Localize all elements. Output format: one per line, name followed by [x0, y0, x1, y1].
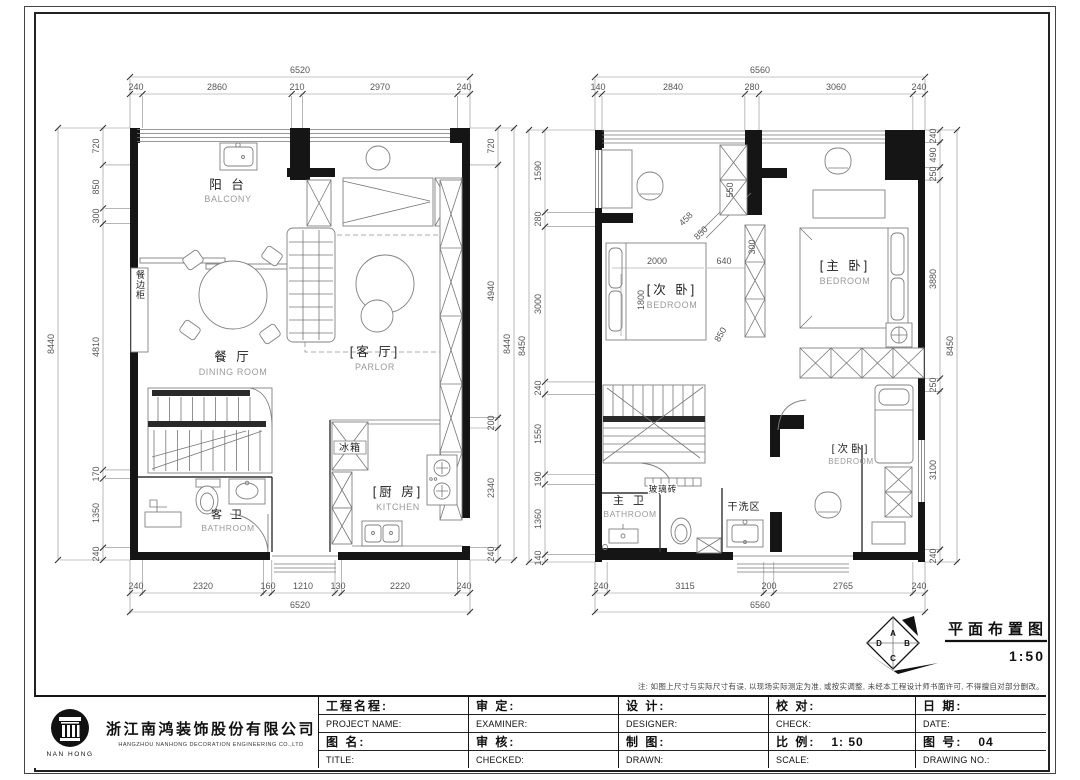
desk	[602, 150, 632, 208]
dim-label: 240	[593, 581, 608, 591]
dim-label: 240	[911, 581, 926, 591]
field-check: 校 对:	[769, 697, 915, 715]
dim-label: 1590	[533, 161, 543, 181]
dim-label: 6520	[290, 65, 310, 75]
field-date-en: DATE:	[916, 715, 1046, 733]
dim-label: 240	[456, 581, 471, 591]
field-drawn-en: DRAWN:	[619, 751, 768, 768]
marker-letter-b: B	[904, 639, 910, 648]
washbasin	[145, 512, 181, 527]
dim-label: 6560	[750, 65, 770, 75]
room-label-master: [主 卧]	[820, 259, 870, 273]
field-scale: 比 例:1: 50	[769, 733, 915, 751]
dim-label: 3880	[928, 269, 938, 289]
dim-label: 240	[928, 548, 938, 563]
field-check-en: CHECK:	[769, 715, 915, 733]
field-designer-en: DESIGNER:	[619, 715, 768, 733]
dim-label: 3100	[928, 460, 938, 480]
guest-bathroom: 客 卫 BATHROOM	[145, 479, 268, 552]
chair	[179, 319, 202, 341]
dim-label: 3000	[533, 294, 543, 314]
dim-label: 210	[289, 82, 304, 92]
title-block-col-designer: 设 计: DESIGNER: 制 图: DRAWN:	[618, 697, 768, 768]
company-name-en: HANGZHOU NANHONG DECORATION ENGINEERING …	[106, 742, 316, 748]
drawing-title: 平面布置图	[948, 620, 1048, 638]
toilet	[671, 518, 691, 544]
field-drawing-no: 图 号:04	[916, 733, 1046, 751]
field-label: 图 名:	[326, 733, 365, 750]
bedroom-3: [次卧] BEDROOM	[815, 385, 913, 544]
room-label-balcony-en: BALCONY	[204, 194, 251, 204]
dim-label: 240	[928, 128, 938, 143]
room-label-balcony: 阳 台	[209, 177, 246, 192]
room-label-parlor: [客 厅]	[350, 344, 400, 359]
stairs	[148, 388, 272, 473]
dim-label: 240	[533, 380, 543, 395]
company-name: 浙江南鸿装饰股份有限公司	[106, 718, 316, 739]
fridge-label: 冰箱	[339, 441, 361, 454]
dim-label: 850	[91, 179, 101, 194]
floor-plan-canvas: 6520 240 2860 210 2970 240 8440 720 850 …	[0, 0, 1080, 695]
field-label: TITLE:	[326, 755, 354, 765]
field-label: 日 期:	[923, 697, 962, 714]
stairs-upper	[603, 385, 705, 491]
dim-label: 250	[928, 377, 938, 392]
field-label: DRAWN:	[626, 755, 663, 765]
title-block-col-project: 工程名程: PROJECT NAME: 图 名: TITLE:	[318, 697, 468, 768]
sofa	[287, 228, 335, 342]
plan-left: 6520 240 2860 210 2970 240 8440 720 850 …	[46, 65, 517, 615]
dim-label: 160	[260, 581, 275, 591]
drawing-sheet: 6520 240 2860 210 2970 240 8440 720 850 …	[0, 0, 1080, 780]
dim-label: 640	[716, 256, 731, 266]
dim-label: 2840	[663, 82, 683, 92]
dim-label: 240	[128, 82, 143, 92]
dim-label: 2765	[833, 581, 853, 591]
dim-label: 240	[911, 82, 926, 92]
room-label-kitchen: [厨 房]	[373, 484, 423, 499]
dim-label: 6560	[750, 600, 770, 610]
title-block-col-check: 校 对: CHECK: 比 例:1: 50 SCALE:	[768, 697, 915, 768]
field-label: DATE:	[923, 719, 950, 729]
marker-letter-c: C	[890, 654, 896, 663]
drawing-scale: 1:50	[1009, 648, 1045, 664]
dim-label: 2970	[370, 82, 390, 92]
room-label-bath2: 主 卫	[613, 494, 647, 507]
field-label: 审 核:	[476, 733, 515, 750]
dim-label: 250	[928, 166, 938, 181]
room-label-bath: 客 卫	[211, 507, 245, 521]
drawing-title-group: A B C D 平面布置图 1:50	[866, 616, 1048, 674]
dim-label: 850	[692, 224, 710, 242]
dim-label: 130	[330, 581, 345, 591]
dim-label: 3115	[675, 581, 694, 591]
field-drawing-no-en: DRAWING NO.:	[916, 751, 1046, 768]
company-logo: NAN HONG	[44, 708, 96, 758]
field-label: 制 图:	[626, 733, 665, 750]
company-cell: NAN HONG 浙江南鸿装饰股份有限公司 HANGZHOU NANHONG D…	[34, 697, 318, 768]
room-label-bath-en: BATHROOM	[201, 523, 254, 533]
room-label-bedroom3: [次卧]	[832, 442, 871, 455]
room-label-bedroom2: [次 卧]	[647, 283, 697, 297]
dim-label: 190	[533, 471, 543, 486]
dim-label: 8440	[502, 334, 512, 354]
title-block-col-examiner: 审 定: EXAMINER: 审 核: CHECKED:	[468, 697, 618, 768]
dim-label: 280	[533, 211, 543, 226]
dim-label: 490	[928, 147, 938, 162]
dim-label: 2000	[647, 256, 667, 266]
field-checked-en: CHECKED:	[469, 751, 618, 768]
room-label-master-en: BEDROOM	[820, 276, 871, 286]
field-label: 审 定:	[476, 697, 515, 714]
field-drawing-name-en: TITLE:	[319, 751, 468, 768]
dim-label: 300	[747, 239, 757, 254]
field-project-name-en: PROJECT NAME:	[319, 715, 468, 733]
room-label-bath2-en: BATHROOM	[603, 509, 656, 519]
field-label: PROJECT NAME:	[326, 719, 401, 729]
room-label-kitchen-en: KITCHEN	[376, 502, 420, 512]
dim-label: 6520	[290, 600, 310, 610]
dim-label: 240	[128, 581, 143, 591]
sideboard-label: 餐边柜	[135, 269, 145, 300]
dim-label: 8450	[517, 336, 527, 356]
dim-label: 2860	[207, 82, 227, 92]
field-label: EXAMINER:	[476, 719, 527, 729]
room-label-bedroom2-en: BEDROOM	[647, 300, 698, 310]
field-scale-en: SCALE:	[769, 751, 915, 768]
master-bathroom: 玻璃砖 主 卫 BATHROOM	[603, 478, 722, 553]
basin	[609, 529, 638, 543]
dim-label: 8440	[46, 334, 56, 354]
dresser	[813, 190, 885, 218]
field-drawing-name: 图 名:	[319, 733, 468, 751]
title-block-col-date: 日 期: DATE: 图 号:04 DRAWING NO.:	[915, 697, 1046, 768]
chair	[259, 323, 282, 345]
chair	[825, 148, 851, 174]
logo-text: NAN HONG	[46, 751, 93, 758]
room-label-bedroom3-en: BEDROOM	[828, 457, 874, 466]
field-checked: 审 核:	[469, 733, 618, 751]
field-date: 日 期:	[916, 697, 1046, 715]
field-examiner: 审 定:	[469, 697, 618, 715]
ceiling-lamp	[366, 146, 390, 170]
dim-label: 2340	[486, 478, 496, 498]
marker-letter-a: A	[890, 629, 896, 638]
laundry-label: 干洗区	[728, 501, 761, 513]
master-bedroom: [主 卧] BEDROOM	[800, 148, 924, 378]
dim-label: 240	[456, 82, 471, 92]
field-label: 设 计:	[626, 697, 665, 714]
field-label: 校 对:	[776, 697, 815, 714]
dim-label: 1800	[636, 290, 646, 310]
title-block: NAN HONG 浙江南鸿装饰股份有限公司 HANGZHOU NANHONG D…	[34, 695, 1046, 768]
field-label: DRAWING NO.:	[923, 755, 990, 765]
room-label-parlor-en: PARLOR	[355, 362, 395, 372]
field-drawn: 制 图:	[619, 733, 768, 751]
dim-label: 280	[744, 82, 759, 92]
dim-label: 140	[533, 550, 543, 565]
chair	[182, 249, 205, 271]
dim-label: 240	[91, 546, 101, 561]
dim-label: 4810	[91, 337, 101, 357]
dim-label: 140	[590, 82, 605, 92]
dim-label: 300	[91, 208, 101, 223]
dim-label: 170	[91, 466, 101, 481]
dim-label: 240	[486, 546, 496, 561]
glass-brick-label: 玻璃砖	[649, 484, 678, 494]
field-label: 工程名程:	[326, 697, 388, 714]
dim-label: 458	[677, 210, 695, 228]
field-label: 图 号:	[923, 733, 962, 750]
field-project-name: 工程名程:	[319, 697, 468, 715]
dim-label: 3060	[826, 82, 846, 92]
dim-label: 720	[486, 138, 496, 153]
chair	[815, 492, 841, 518]
field-label: CHECKED:	[476, 755, 524, 765]
bench	[872, 522, 905, 544]
dim-label: 1210	[293, 581, 313, 591]
dim-label: 4940	[486, 281, 496, 301]
field-label: DESIGNER:	[626, 719, 677, 729]
dim-label: 1360	[533, 509, 543, 529]
dim-label: 200	[761, 581, 776, 591]
field-label: SCALE:	[776, 755, 809, 765]
room-label-dining-en: DINING ROOM	[199, 367, 268, 377]
chair	[637, 172, 663, 200]
dim-label: 2220	[390, 581, 410, 591]
scale-value: 1: 50	[831, 735, 863, 749]
field-label: 比 例:	[776, 733, 815, 750]
dim-label: 200	[486, 415, 496, 430]
dim-label: 8450	[945, 336, 955, 356]
field-designer: 设 计:	[619, 697, 768, 715]
dim-label: 720	[91, 138, 101, 153]
dim-label: 1550	[533, 424, 543, 444]
plan-right: 6560 140 2840 280 3060 240 1590 280 3000…	[517, 65, 960, 615]
dim-label: 850	[712, 325, 728, 343]
dining-table	[199, 261, 267, 329]
marker-letter-d: D	[876, 639, 882, 648]
drawing-no-value: 04	[978, 735, 993, 749]
dim-label: 1350	[91, 503, 101, 523]
dim-label: 2320	[193, 581, 213, 591]
parlor-wardrobe	[307, 146, 462, 226]
revision-note: 注: 如图上尺寸与实际尺寸有误, 以现场实际测定为准, 或按实调整, 未经本工程…	[524, 681, 1044, 692]
field-label: CHECK:	[776, 719, 811, 729]
rug-circle	[361, 300, 393, 332]
dim-label: 550	[725, 182, 735, 197]
field-examiner-en: EXAMINER:	[469, 715, 618, 733]
laundry-area: 干洗区	[727, 501, 763, 547]
room-label-dining: 餐 厅	[214, 349, 251, 364]
